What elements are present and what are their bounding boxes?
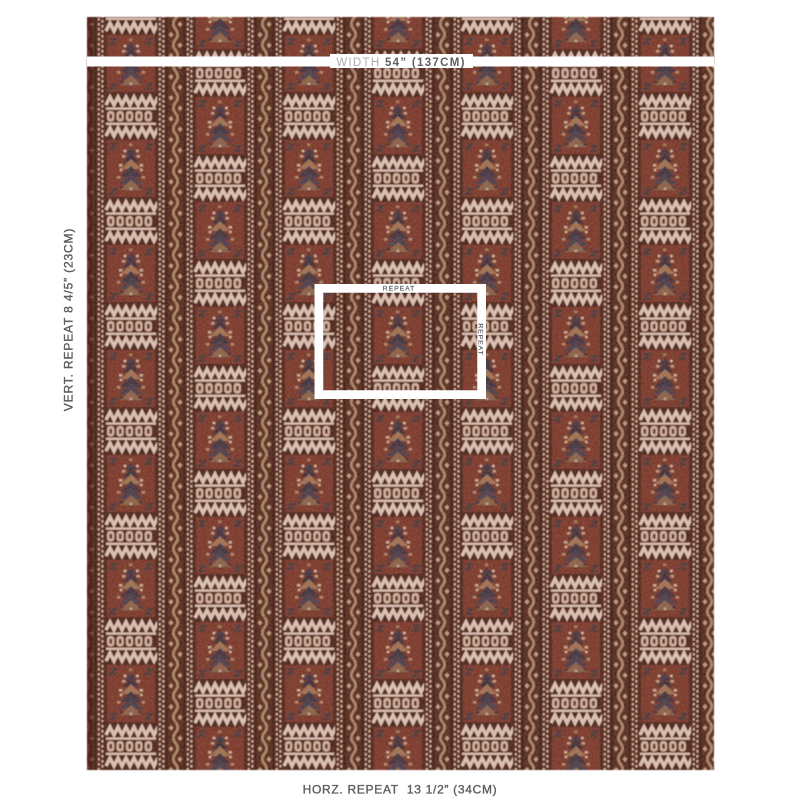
svg-text:WIDTH 54” (137CM): WIDTH 54” (137CM) (336, 57, 465, 69)
svg-text:VERT. REPEAT 8 4/5” (23CM): VERT. REPEAT 8 4/5” (23CM) (61, 228, 75, 412)
svg-text:HORZ. REPEAT 13 1/2” (34CM): HORZ. REPEAT 13 1/2” (34CM) (303, 783, 498, 797)
svg-text:REPEAT: REPEAT (477, 323, 484, 355)
svg-text:REPEAT: REPEAT (383, 286, 415, 293)
